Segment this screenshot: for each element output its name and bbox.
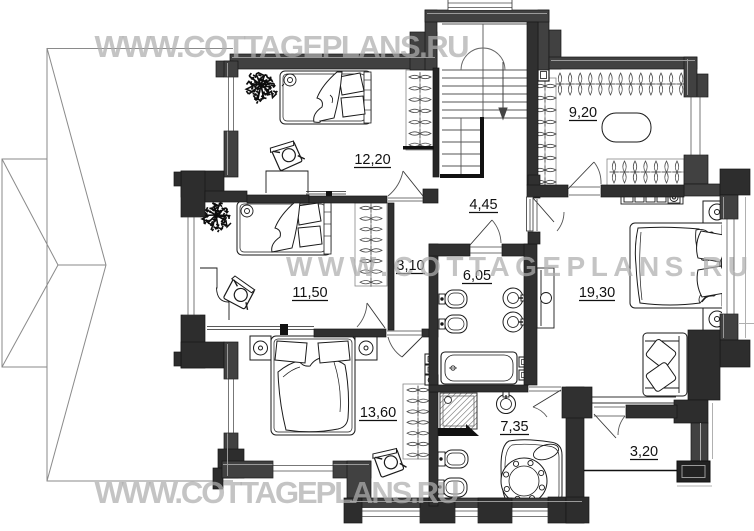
svg-text:12,20: 12,20 [354, 152, 390, 168]
svg-text:9,20: 9,20 [569, 105, 597, 121]
svg-text:4,45: 4,45 [469, 197, 497, 213]
svg-text:3,20: 3,20 [630, 444, 658, 460]
svg-text:WWW.COTTAGEPLANS.RU: WWW.COTTAGEPLANS.RU [286, 251, 748, 282]
svg-text:WWW.COTTAGEPLANS.RU: WWW.COTTAGEPLANS.RU [95, 475, 460, 510]
svg-text:7,35: 7,35 [500, 419, 528, 435]
svg-text:11,50: 11,50 [292, 285, 327, 301]
svg-text:WWW.COTTAGEPLANS.RU: WWW.COTTAGEPLANS.RU [95, 29, 470, 64]
svg-text:13,60: 13,60 [360, 405, 396, 421]
svg-text:19,30: 19,30 [579, 285, 615, 301]
